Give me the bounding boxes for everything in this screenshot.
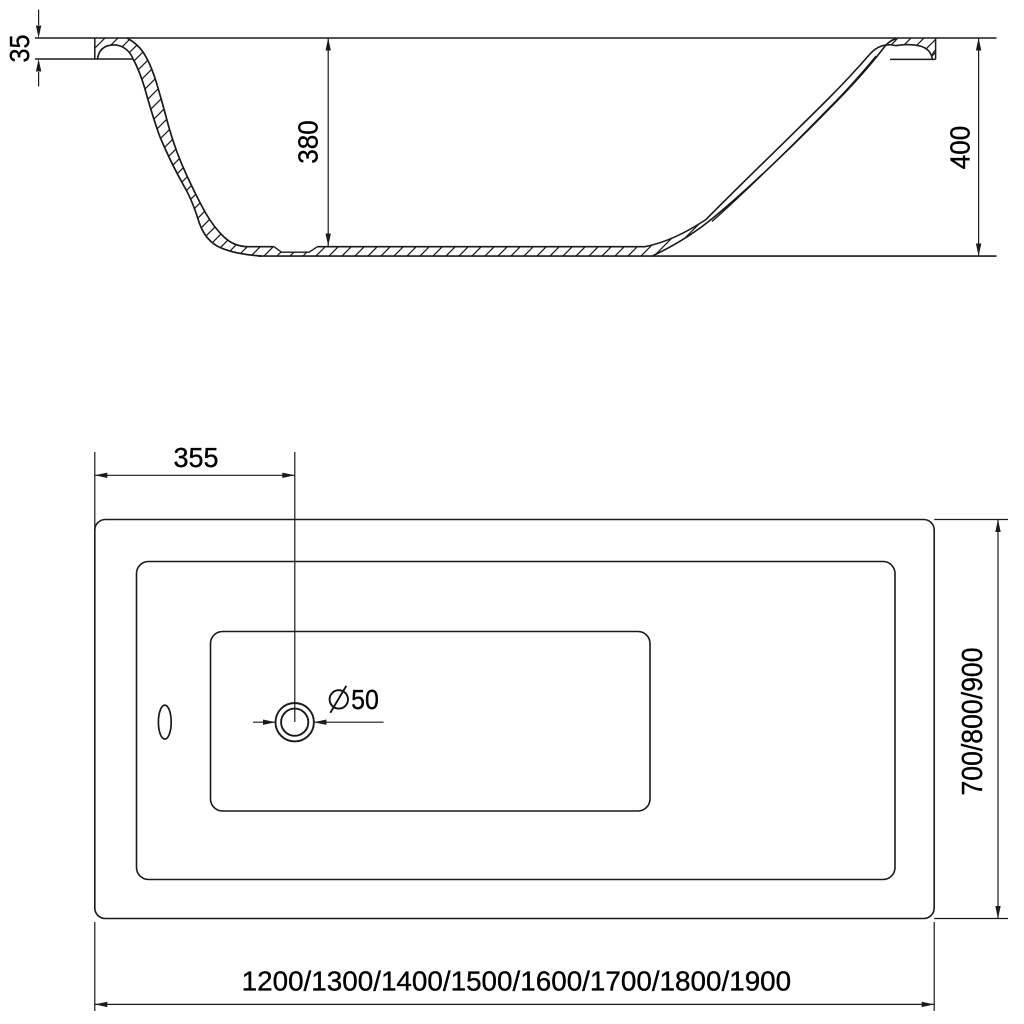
svg-text:35: 35 (4, 35, 35, 63)
svg-text:700/800/900: 700/800/900 (957, 648, 989, 796)
svg-text:1200/1300/1400/1500/1600/1700/: 1200/1300/1400/1500/1600/1700/1800/1900 (242, 966, 792, 997)
svg-text:380: 380 (293, 120, 324, 164)
svg-text:355: 355 (174, 442, 219, 473)
svg-text:400: 400 (944, 126, 975, 170)
svg-text:50: 50 (351, 684, 379, 715)
